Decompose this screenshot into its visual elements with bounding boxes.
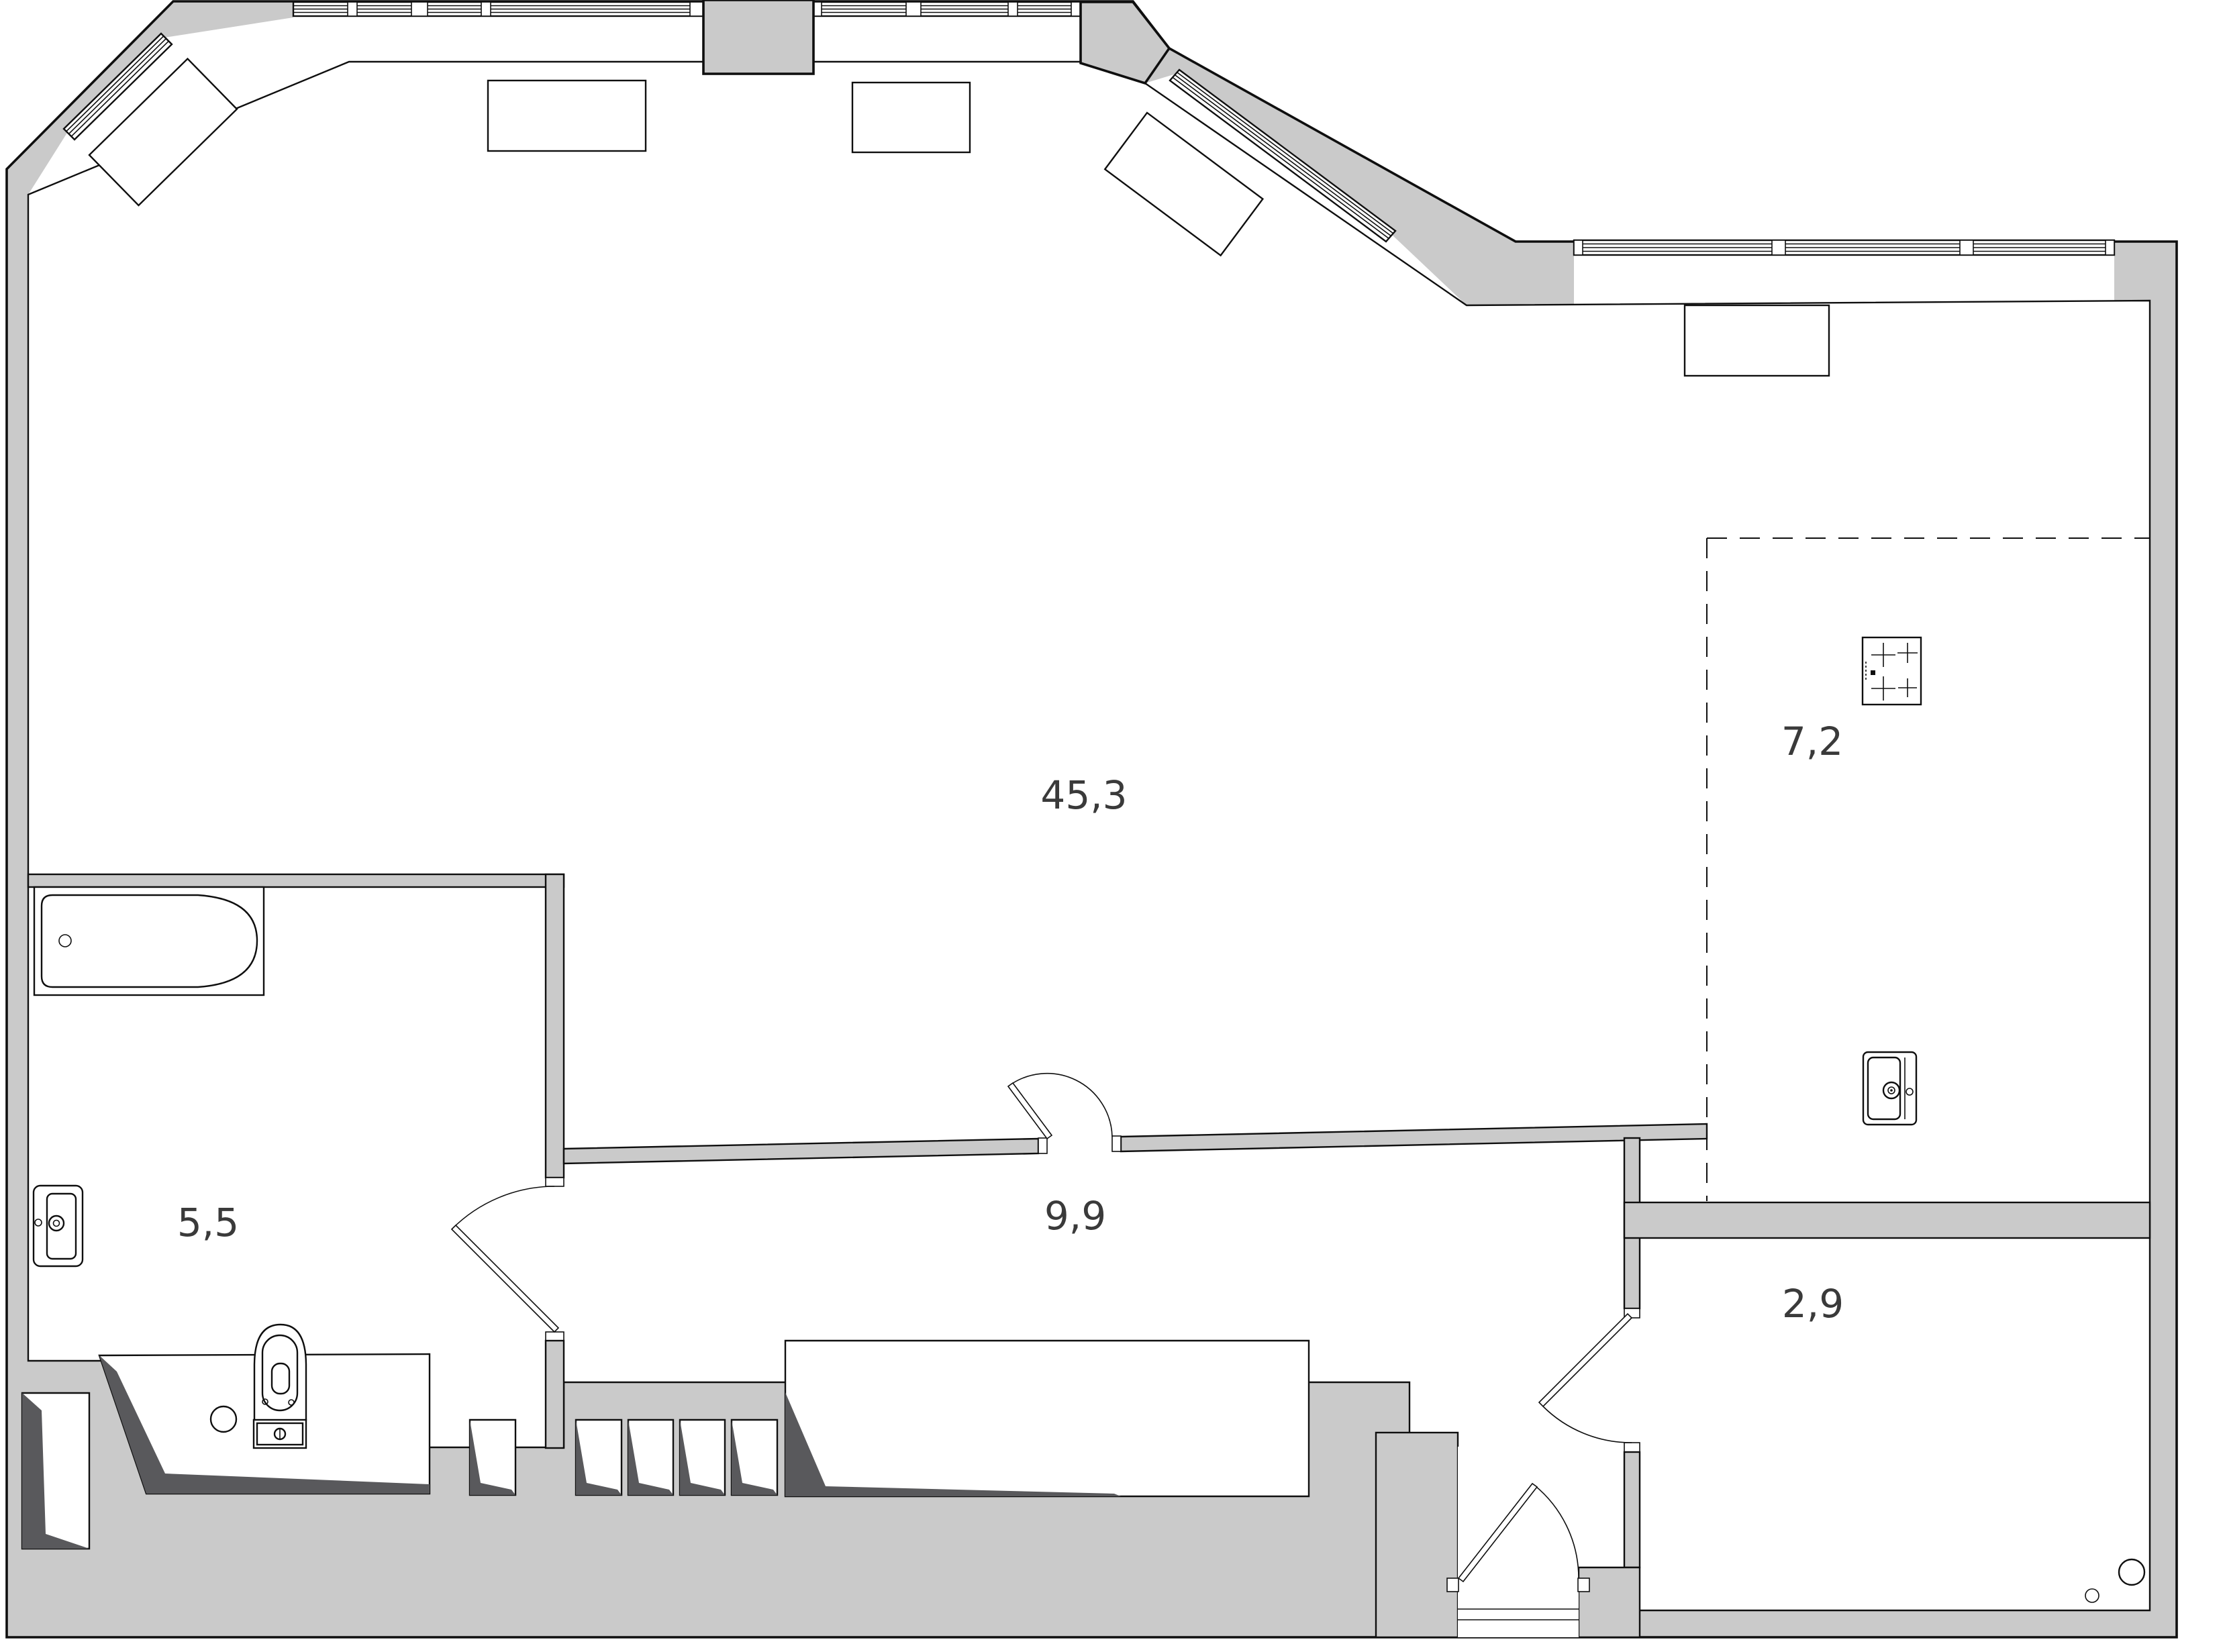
room-label-kitchen: 7,2 xyxy=(1781,719,1843,764)
floor-plan-canvas: 45,3 7,2 5,5 9,9 2,9 xyxy=(0,0,2225,1652)
room-label-living: 45,3 xyxy=(1040,772,1127,818)
room-label-hallway: 9,9 xyxy=(1044,1193,1106,1239)
window-icon xyxy=(680,1420,725,1495)
window-icon xyxy=(732,1420,777,1495)
toilet-icon xyxy=(254,1325,306,1448)
wall-pier xyxy=(703,0,813,74)
room-label-bathroom: 5,5 xyxy=(177,1200,239,1245)
entrance-opening xyxy=(1447,1447,1589,1637)
window-icon xyxy=(628,1420,673,1495)
window-icon xyxy=(576,1420,622,1495)
radiator-icon xyxy=(852,83,970,152)
stove-icon xyxy=(1863,637,1921,705)
bathtub-icon xyxy=(34,887,264,995)
right-wing-window-band xyxy=(1574,240,2114,255)
radiator-icon xyxy=(488,81,646,151)
window-icon xyxy=(785,1341,1309,1496)
kitchen-sink-icon xyxy=(1863,1052,1916,1125)
room-label-entry: 2,9 xyxy=(1782,1281,1844,1327)
floor-plan-svg: 45,3 7,2 5,5 9,9 2,9 xyxy=(0,0,2225,1652)
window-icon xyxy=(22,1393,89,1549)
window-icon xyxy=(470,1420,515,1495)
washbasin-icon xyxy=(34,1186,83,1266)
radiator-icon xyxy=(1685,305,1829,376)
